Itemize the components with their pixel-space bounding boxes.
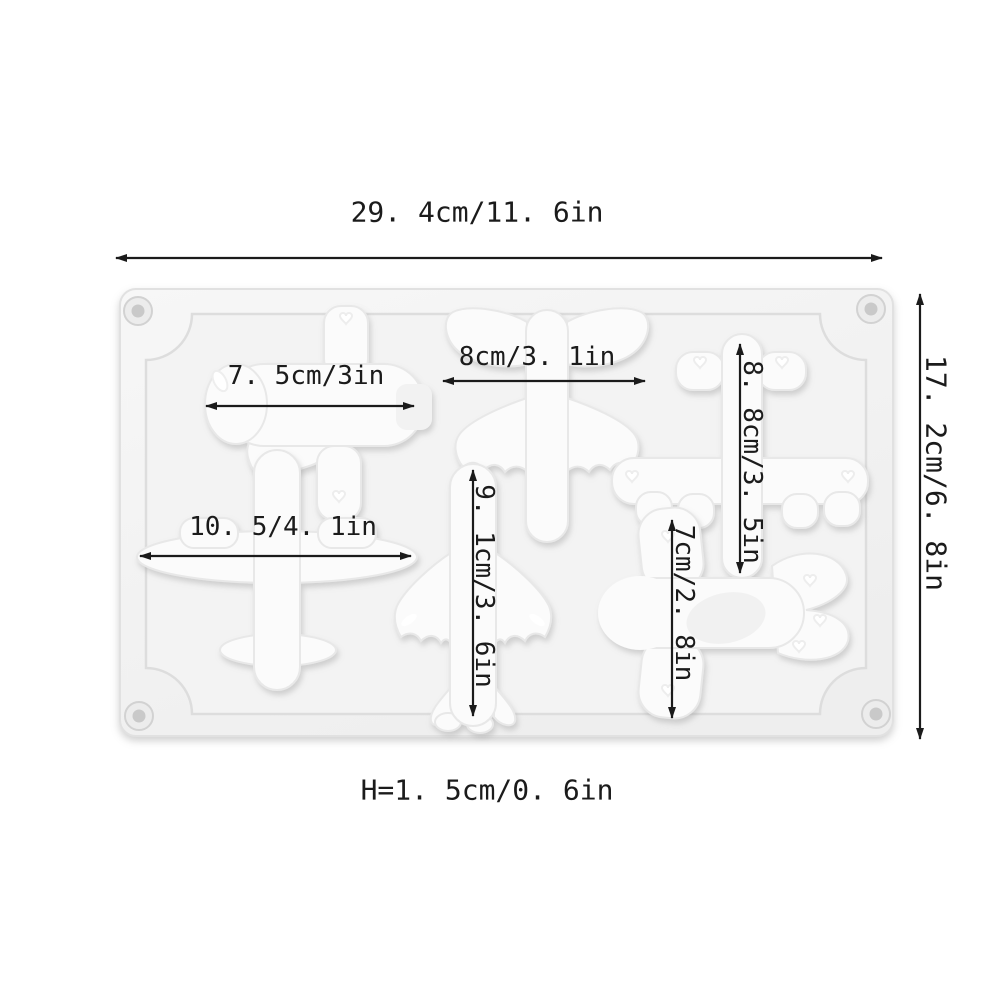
mold-drawing xyxy=(0,0,1000,1000)
overall-height-label: 17. 2cm/6. 8in xyxy=(920,355,953,591)
corner-hole-top-right xyxy=(857,295,885,323)
cavity5-size-label: 9. 1cm/3. 6in xyxy=(469,484,499,688)
cavity6-size-label: 7cm/2. 8in xyxy=(669,525,699,682)
cavity2-size-label: 8cm/3. 1in xyxy=(459,342,616,372)
cavity4-size-label: 10. 5/4. 1in xyxy=(189,512,377,542)
overall-width-label: 29. 4cm/11. 6in xyxy=(351,196,604,229)
cavity3-size-label: 8. 8cm/3. 5in xyxy=(737,360,767,564)
corner-hole-bottom-right xyxy=(862,700,890,728)
corner-hole-top-left xyxy=(124,297,152,325)
product-dimension-diagram: 29. 4cm/11. 6in 17. 2cm/6. 8in H=1. 5cm/… xyxy=(0,0,1000,1000)
cavity1-size-label: 7. 5cm/3in xyxy=(228,361,385,391)
corner-hole-bottom-left xyxy=(125,702,153,730)
mold-height-label: H=1. 5cm/0. 6in xyxy=(361,774,614,807)
